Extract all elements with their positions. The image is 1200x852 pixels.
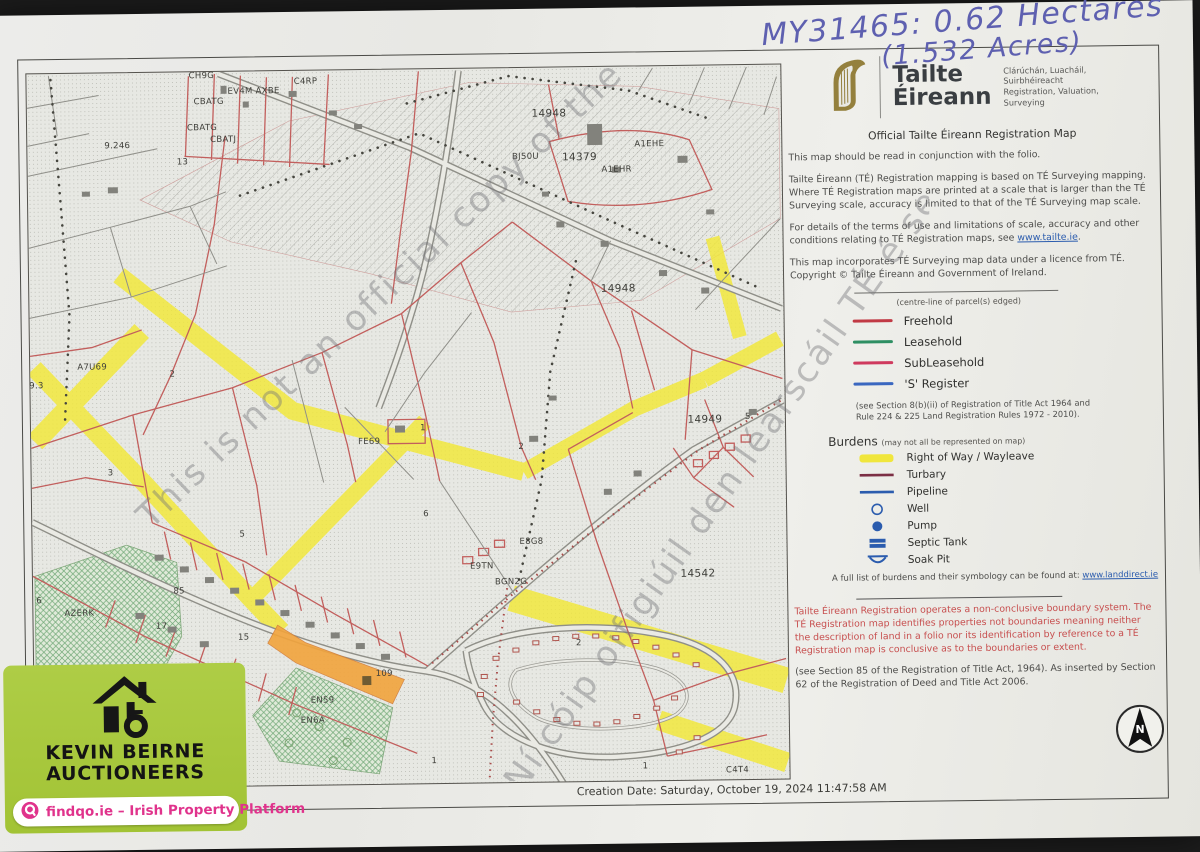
well-symbol bbox=[855, 502, 899, 517]
burden-label: Septic Tank bbox=[907, 536, 967, 549]
freehold-line-sample bbox=[853, 319, 893, 323]
burden-label: Pipeline bbox=[907, 485, 948, 498]
burden-row-septic-tank: Septic Tank bbox=[855, 533, 1161, 551]
burden-label: Well bbox=[907, 503, 929, 515]
paragraph-folio: This map should be read in conjunction w… bbox=[788, 148, 1156, 166]
burden-row-pipeline: Pipeline bbox=[855, 482, 1161, 500]
burden-label: Turbary bbox=[907, 468, 947, 481]
agency-name: KEVIN BEIRNE AUCTIONEERS bbox=[45, 741, 205, 785]
info-panel: Tailte Éireann Clárúchán, Luacháil, Suir… bbox=[787, 53, 1163, 693]
burdens-title: Burdens (may not all be represented on m… bbox=[828, 431, 1160, 449]
subleasehold-line-sample bbox=[853, 361, 893, 365]
burden-row-turbary: Turbary bbox=[855, 465, 1161, 483]
legend-note: (centre-line of parcel(s) edged) bbox=[896, 294, 1158, 306]
s-register-line-sample bbox=[853, 382, 893, 386]
legend-row-freehold: Freehold bbox=[853, 310, 1159, 328]
statute-note-2: (see Section 85 of the Registration of T… bbox=[795, 662, 1163, 693]
photographed-map-sheet: CH9GEV4M AXBEC4RPCBATGCBATGCBATJ9.246131… bbox=[0, 0, 1200, 852]
house-key-icon bbox=[88, 676, 161, 743]
creation-date: Creation Date: Saturday, October 19, 202… bbox=[542, 781, 922, 799]
legend-label: Leasehold bbox=[904, 334, 962, 349]
turbary-symbol bbox=[855, 468, 899, 483]
document-title: Official Tailte Éireann Registration Map bbox=[788, 126, 1156, 144]
legend-label: Freehold bbox=[904, 313, 953, 328]
paragraph-scale: Tailte Éireann (TÉ) Registration mapping… bbox=[789, 170, 1157, 214]
paragraph-copyright: This map incorporates TÉ Surveying map d… bbox=[790, 252, 1158, 283]
septic-tank-symbol bbox=[855, 536, 899, 551]
burdens-footer: A full list of burdens and their symbolo… bbox=[832, 570, 1162, 586]
burdens-title-text: Burdens bbox=[828, 434, 878, 449]
paragraph-terms: For details of the terms of use and limi… bbox=[789, 217, 1157, 248]
legend-row-s-register: 'S' Register bbox=[853, 373, 1159, 391]
compass-letter: N bbox=[1135, 723, 1144, 736]
tagline-ga1: Clárúchán, Luacháil, bbox=[1003, 64, 1098, 76]
platform-label: findqo.ie – Irish Property Platform bbox=[46, 801, 305, 820]
tagline-en2: Surveying bbox=[1004, 96, 1099, 108]
north-arrow-icon: N bbox=[1114, 703, 1167, 756]
burden-row-well: Well bbox=[855, 499, 1161, 517]
pipeline-symbol bbox=[855, 485, 899, 500]
burden-row-pump: Pump bbox=[855, 516, 1161, 534]
findqo-icon bbox=[21, 801, 39, 823]
legend-row-leasehold: Leasehold bbox=[853, 331, 1159, 349]
pump-symbol bbox=[855, 519, 899, 534]
kevin-beirne-badge: KEVIN BEIRNE AUCTIONEERS findqo.ie – Iri… bbox=[3, 663, 247, 834]
soak-pit-symbol bbox=[856, 553, 900, 568]
boundary-warning: Tailte Éireann Registration operates a n… bbox=[794, 601, 1159, 658]
legend-label: SubLeasehold bbox=[904, 355, 984, 370]
divider-line-top bbox=[854, 290, 1058, 294]
burden-label: Soak Pit bbox=[908, 553, 950, 566]
legend-row-subleasehold: SubLeasehold bbox=[853, 352, 1159, 370]
agency-line2: AUCTIONEERS bbox=[46, 762, 206, 785]
findqo-platform-pill[interactable]: findqo.ie – Irish Property Platform bbox=[13, 796, 239, 827]
burden-label: Pump bbox=[907, 520, 937, 532]
right-of-way-symbol bbox=[854, 451, 898, 466]
landdirect-link[interactable]: www.landdirect.ie bbox=[1082, 570, 1158, 581]
burden-row-right-of-way: Right of Way / Wayleave bbox=[854, 448, 1160, 466]
brand-line2: Éireann bbox=[893, 86, 992, 111]
terms-text: For details of the terms of use and limi… bbox=[789, 218, 1139, 247]
tailte-link[interactable]: www.tailte.ie bbox=[1017, 232, 1078, 244]
burdens-subtitle: (may not all be represented on map) bbox=[881, 436, 1025, 447]
terms-suffix: . bbox=[1078, 231, 1081, 242]
burden-row-soak-pit: Soak Pit bbox=[856, 550, 1162, 568]
burdens-footer-text: A full list of burdens and their symbolo… bbox=[832, 571, 1082, 584]
brand-tagline: Clárúchán, Luacháil, Suirbhéireacht Regi… bbox=[1003, 62, 1099, 108]
divider-line-bottom bbox=[856, 596, 1062, 600]
burden-label: Right of Way / Wayleave bbox=[906, 450, 1034, 464]
legend-label: 'S' Register bbox=[904, 376, 969, 391]
tagline-en1: Registration, Valuation, bbox=[1003, 85, 1098, 97]
leasehold-line-sample bbox=[853, 340, 893, 344]
legend-statute-note: (see Section 8(b)(ii) of Registration of… bbox=[856, 397, 1108, 424]
